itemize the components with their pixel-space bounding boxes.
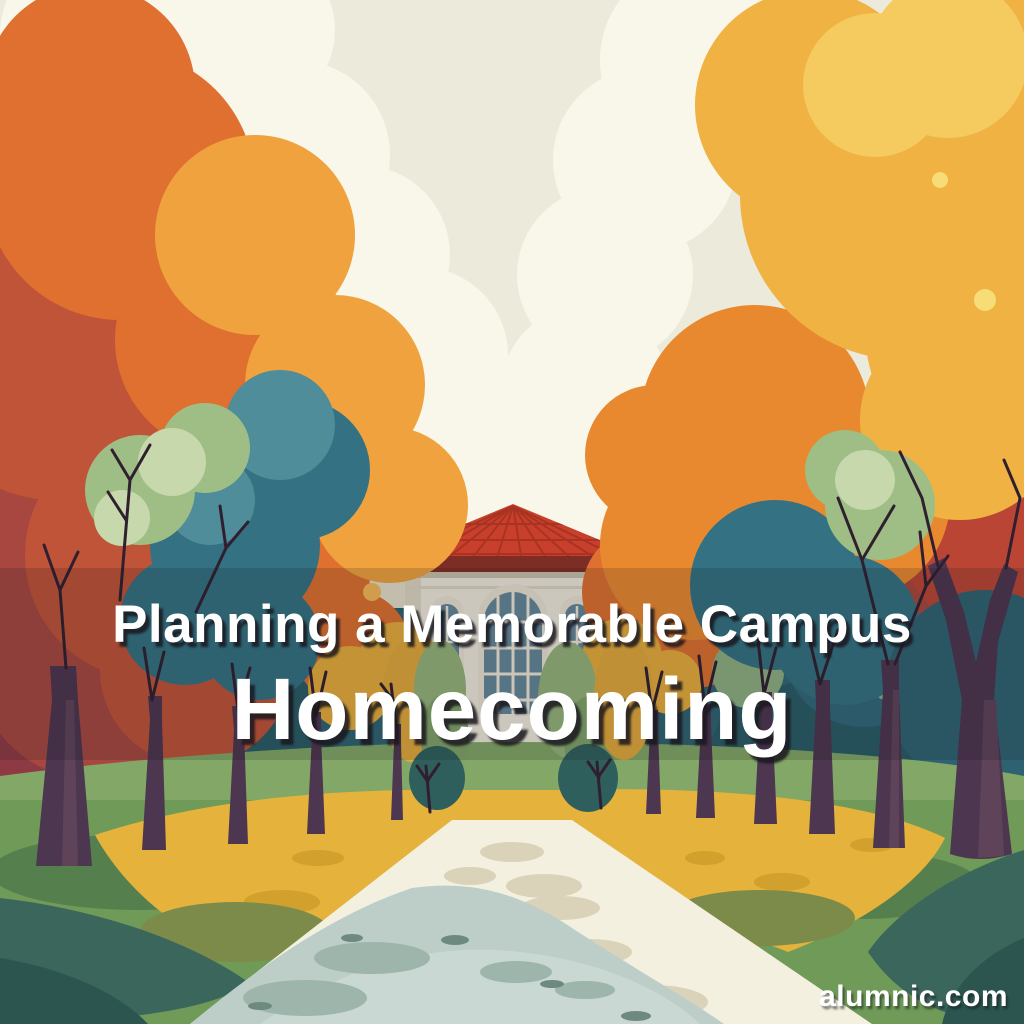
title-line-2: Homecoming — [0, 660, 1024, 760]
campus-scene — [0, 0, 1024, 1024]
illustration-canvas: Planning a Memorable Campus Homecoming a… — [0, 0, 1024, 1024]
watermark-site-url: alumnic.com — [819, 980, 1008, 1014]
title-line-1: Planning a Memorable Campus — [0, 594, 1024, 655]
